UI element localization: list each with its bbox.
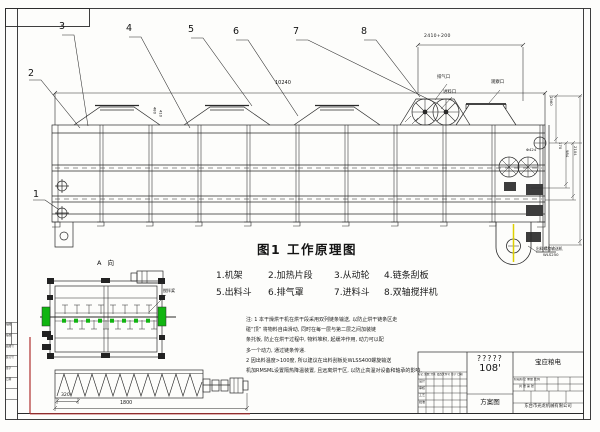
dim-overall-length: 10240 (275, 81, 291, 86)
note-line: 注: 1 本干燥烘干机在烘干段采用双列链条输送, 以防止烘干链条区走 (246, 316, 422, 326)
balloon-7: 7 (293, 27, 299, 37)
tb-row-approve: 批准 (419, 401, 425, 404)
discharge-hopper (496, 222, 537, 265)
balloon-3: 3 (59, 22, 65, 32)
screw-conveyor (53, 370, 249, 411)
tb-left-header: 标记 处数 分区 更改文件号 签字 日期 (418, 373, 467, 376)
tb-model-unknown: ????? (467, 355, 513, 363)
engineering-drawing-sheet: 图1 工作原理图 1.机架 2.加热片段 3.从动轮 4.链条刮板 5.出料斗 … (0, 0, 600, 432)
observation-port (456, 104, 516, 125)
balloon-5: 5 (188, 25, 194, 35)
balloon-1: 1 (33, 190, 39, 200)
rev-strip-label: 描校 (6, 335, 11, 338)
rev-strip-label: 日期 (6, 379, 11, 382)
tb-row-design: 设计 (419, 380, 425, 383)
tb-stage-row: 阶段标记 重量 比例 (514, 378, 583, 381)
dim-top-span: 2410+200 (424, 35, 451, 40)
label-view-a: A 向 (97, 260, 116, 267)
parts-item-7: 7.进料斗 (334, 285, 384, 298)
notes-block: 注: 1 本干燥烘干机在烘干段采用双列链条输送, 以防止烘干链条区走 碰“顶” … (246, 316, 422, 377)
parts-item-8: 8.双轴搅拌机 (384, 285, 450, 298)
top-span-dim (416, 43, 525, 101)
parts-item-5: 5.出料斗 (216, 285, 268, 298)
tb-sheet-row: 共 张 第 张 (519, 385, 534, 388)
dim-410: 410 (158, 110, 162, 117)
balloon-4: 4 (126, 24, 132, 34)
parts-item-4: 4.链条刮板 (384, 268, 450, 281)
rev-strip-label: 底图号 (6, 346, 14, 349)
dim-480: 480 (152, 107, 156, 114)
balloon-leaders (29, 35, 436, 209)
figure-title: 图1 工作原理图 (257, 244, 357, 257)
dryer-body (52, 125, 545, 247)
balloon-8: 8 (361, 27, 367, 37)
tb-model-no: 108' (467, 364, 513, 374)
label-feed-port: 进料口 (443, 91, 456, 95)
port-label-leaders (435, 84, 500, 109)
label-exhaust-port: 排气口 (437, 76, 450, 80)
tb-row-process: 工艺 (419, 394, 425, 397)
tb-doc-type: 方案图 (467, 399, 513, 406)
label-inspection-port: 观察口 (491, 81, 504, 85)
tb-company: 东台市光龙机械有限公司 (513, 405, 583, 409)
note-line: 碰“顶” 将物料自由滑动, 同时在每一层与第二层之间加装链 (246, 326, 422, 336)
note-line: 2 因出料温度>100度, 所以建议在出料刮板处WLSS400螺旋输送 (246, 357, 422, 367)
tb-client: 宝应粮电 (513, 359, 583, 366)
parts-item-6: 6.排气罩 (268, 285, 334, 298)
dim-1560: 1560 (549, 96, 553, 106)
note-line: 多一个动力, 通过链条传递. (246, 347, 422, 357)
parts-list: 1.机架 2.加热片段 3.从动轮 4.链条刮板 5.出料斗 6.排气罩 7.进… (216, 268, 450, 298)
dim-170: 170 (558, 142, 562, 149)
label-discharge-2: WLS250 (543, 253, 559, 257)
exhaust-hoods (74, 106, 380, 126)
note-line: 条托板, 防止在烘干过程中, 物料堆积, 起缓冲作用, 动力可以配 (246, 336, 422, 346)
dim-phi424: Φ424 (526, 148, 536, 152)
red-marks (30, 337, 250, 414)
rev-strip-label: 装订号 (6, 357, 14, 360)
dim-1800: 1800 (120, 402, 132, 407)
parts-item-1: 1.机架 (216, 268, 268, 281)
balloon-6: 6 (233, 27, 239, 37)
note-line: 机加RMSML设置隔热降温装置, 且远离烘干区, 以防止高温对设备和轴承的影响. (246, 367, 422, 377)
balloon-2: 2 (28, 69, 34, 79)
parts-item-3: 3.从动轮 (334, 268, 384, 281)
rev-strip-label: 描图 (6, 324, 11, 327)
label-mixer-paddle: 搅拌桨 (163, 289, 175, 293)
label-discharge-1: 出料螺旋输送机 (536, 247, 563, 251)
dim-320: 320 (61, 394, 70, 399)
overall-dim (53, 91, 547, 125)
parts-item-2: 2.加热片段 (268, 268, 334, 281)
rev-strip-label: 签字 (6, 368, 11, 371)
dim-2104: 2104 (573, 146, 577, 156)
mixer (400, 99, 470, 125)
dim-984: 984 (565, 150, 569, 157)
view-a-drawing (40, 271, 176, 359)
tb-row-check: 审核 (419, 387, 425, 390)
